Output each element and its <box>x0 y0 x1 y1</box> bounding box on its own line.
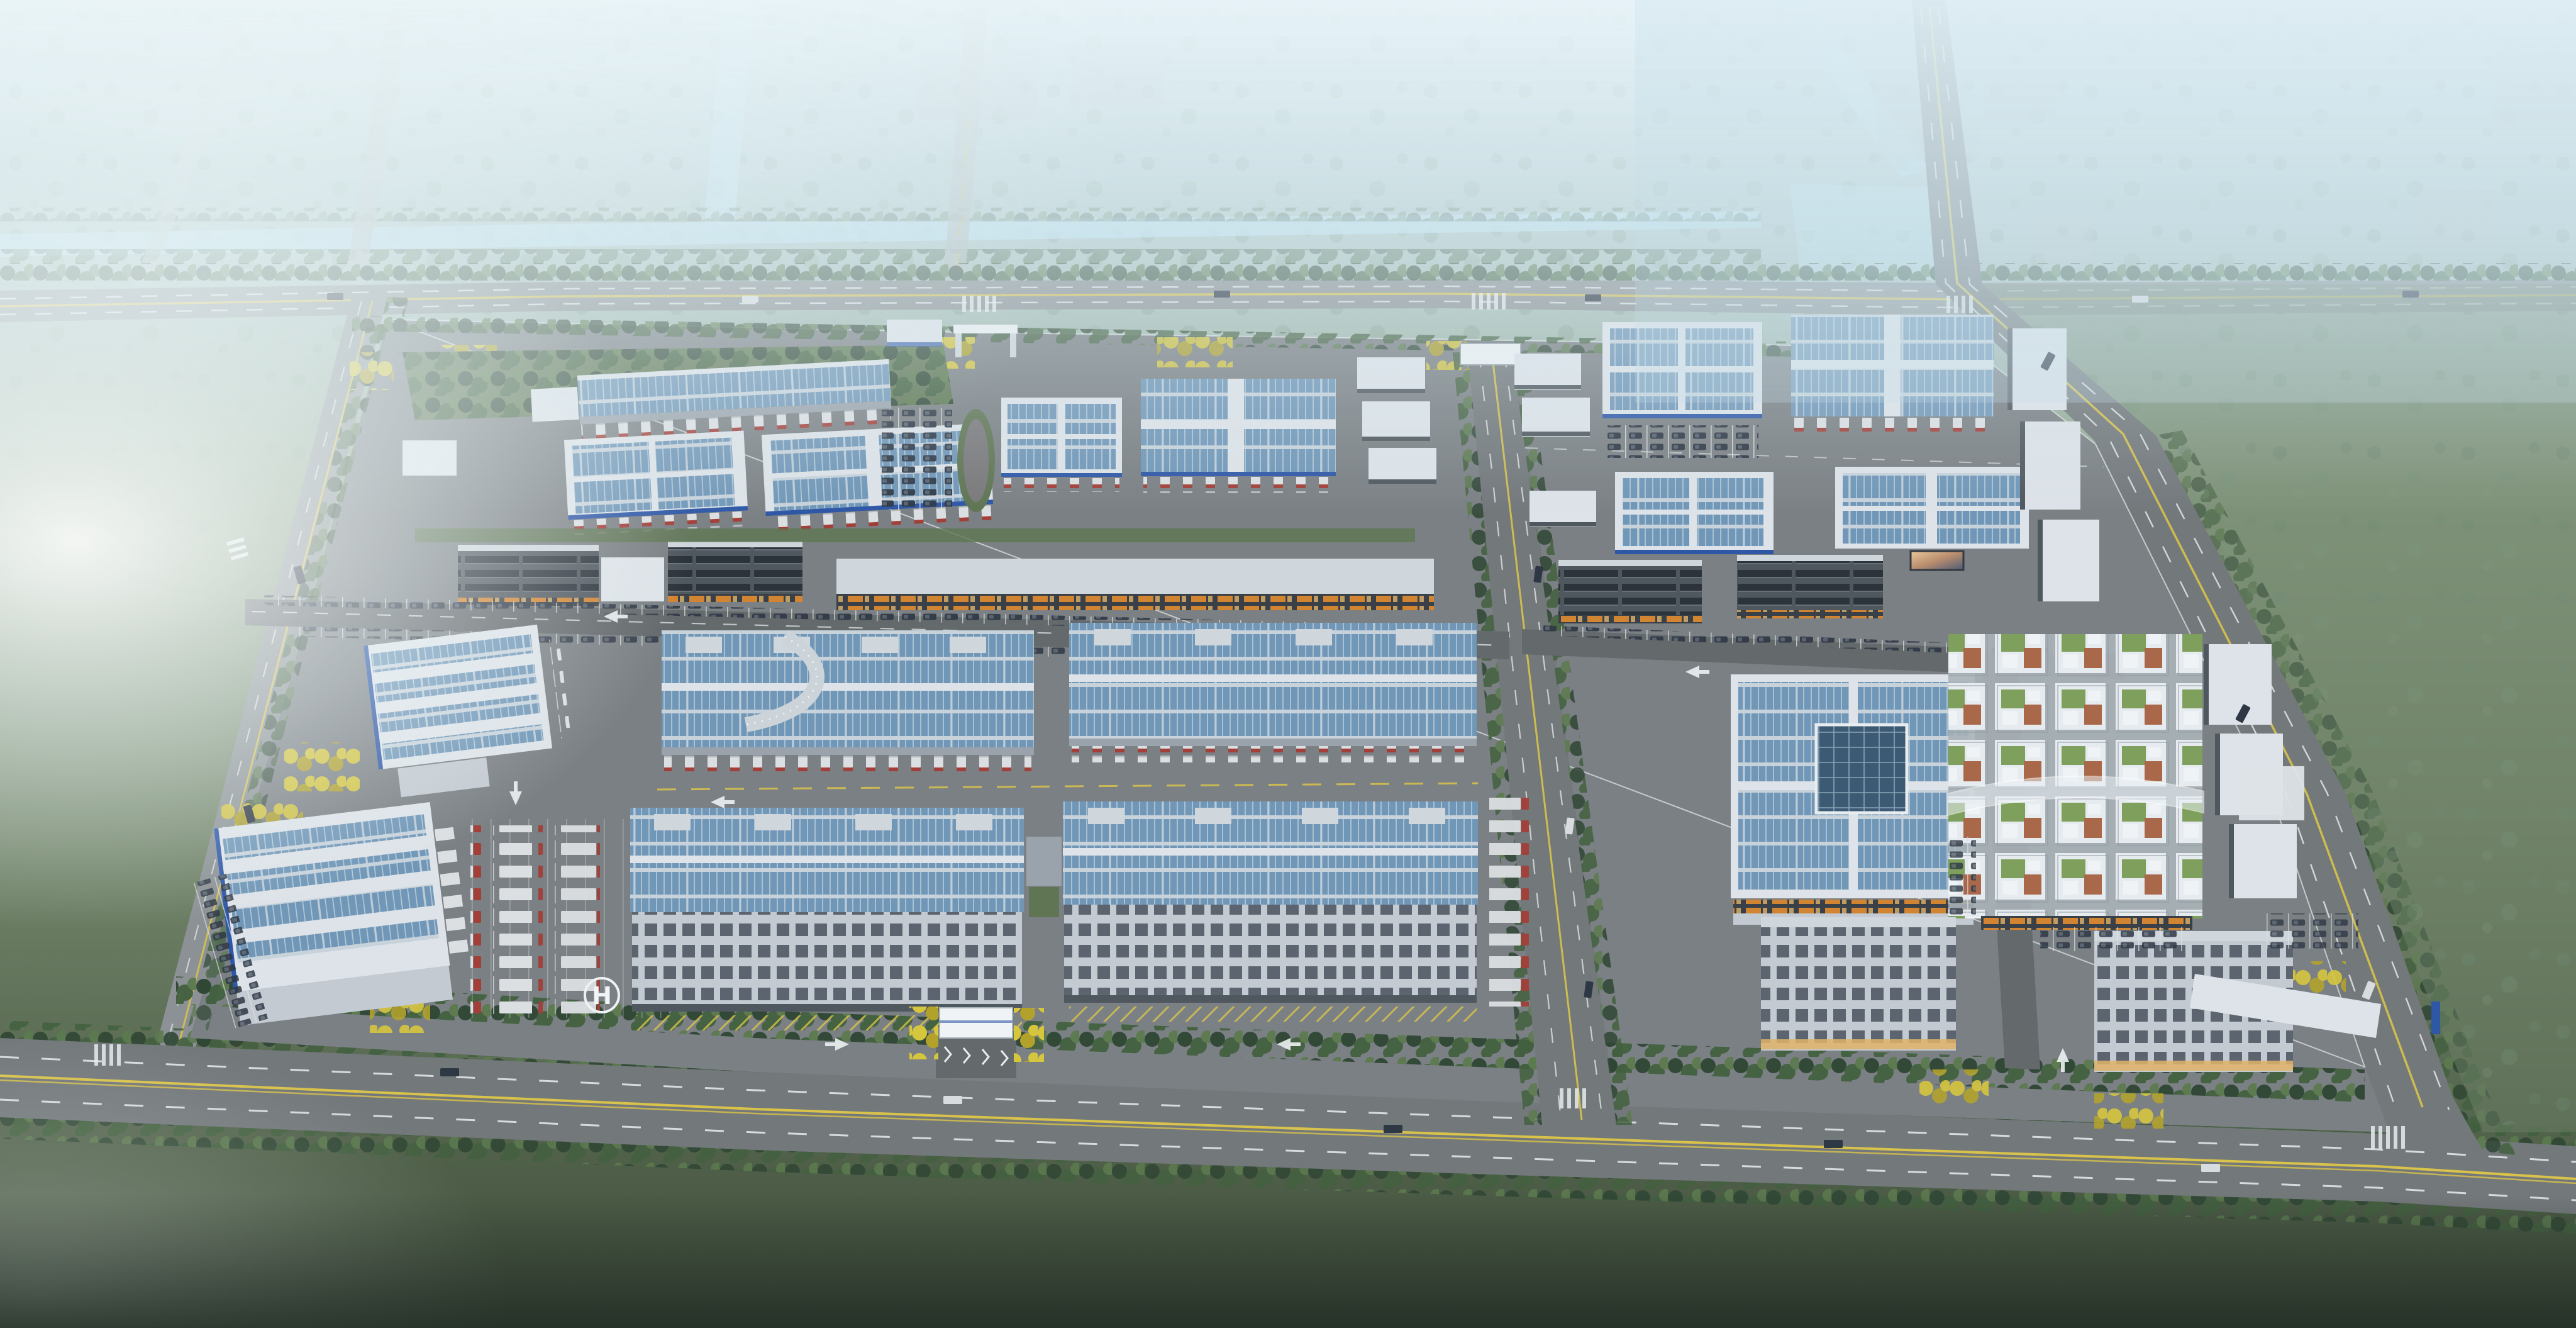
bw-se-base <box>1064 995 1477 1003</box>
roof-monitor <box>862 637 898 653</box>
roof-monitor <box>1409 808 1445 824</box>
bw-se-walk <box>1063 848 1478 856</box>
yellow-trees <box>1919 1069 1989 1105</box>
blue-totem-sign <box>2431 1002 2440 1034</box>
dropoff-canopy <box>2239 766 2304 820</box>
connector-courtyard <box>1029 887 1059 917</box>
car <box>2201 1164 2220 1172</box>
ru-office-2-shops <box>1737 610 1883 618</box>
truck-yard-col2 <box>538 825 600 1014</box>
strip-face <box>2038 520 2043 601</box>
roof-monitor <box>1296 629 1332 645</box>
bw-ne-canopy <box>1069 739 1477 746</box>
car <box>440 1068 459 1076</box>
warehouse-connector <box>1026 837 1062 886</box>
big-warehouse-sw <box>630 808 1024 1030</box>
office-tower-1-roof <box>1761 917 1956 927</box>
artery-truck-column <box>1489 795 1535 1007</box>
big-warehouse-ne <box>1069 623 1477 762</box>
office-tower-1-lobby <box>1761 1039 1956 1049</box>
bw-se-wall <box>1064 905 1477 998</box>
ru-office-1 <box>1558 565 1702 615</box>
strip-seg <box>2038 520 2099 601</box>
rl-parking-row-1 <box>2040 927 2185 951</box>
courtyard-cluster <box>1947 634 2204 930</box>
ru-office-2-roof <box>1737 555 1883 561</box>
office-slab-2-shops <box>668 594 802 602</box>
roof-monitor <box>950 637 986 653</box>
logistics-park-scene: H <box>0 0 2576 1328</box>
bottom-vignette <box>0 1195 2576 1328</box>
rl-big-warehouse <box>1731 674 1975 925</box>
bw-se-hatch-zone <box>1069 1007 1477 1022</box>
strip-face <box>2215 734 2220 815</box>
roof-monitor <box>1088 808 1124 824</box>
roof-monitor <box>1195 808 1231 824</box>
rl-parking-row-2 <box>2264 913 2358 949</box>
roof-monitor <box>956 814 992 830</box>
bw-ne-dock-trucks <box>1072 746 1474 762</box>
strip-face <box>1529 522 1596 527</box>
ru-office-1-roof <box>1558 560 1702 566</box>
strip-face <box>2229 824 2234 898</box>
roof-monitor <box>654 814 691 830</box>
strip-seg <box>2204 644 2272 725</box>
roof-monitor <box>1195 629 1231 645</box>
office-tower-2-lobby <box>2094 1061 2293 1071</box>
big-warehouse-se <box>1063 801 1478 1022</box>
rl-parking-col <box>1950 837 1976 917</box>
toll-canopy-accent <box>940 1020 1013 1023</box>
car <box>943 1096 962 1104</box>
ru-office-2 <box>1737 560 1883 610</box>
bw-nw-walk <box>662 683 1034 691</box>
ru-sw-panels <box>1623 515 1689 546</box>
retail-strip-roof <box>836 559 1434 594</box>
roof-monitor <box>686 637 722 653</box>
toll-yellow-trees-w <box>909 1007 938 1059</box>
bw-sw-wall <box>632 912 1022 1007</box>
strip-seg <box>2229 824 2297 898</box>
bw-ne-walk <box>1069 674 1477 682</box>
car <box>1824 1140 1843 1148</box>
bw-nw-canopy <box>662 747 1034 755</box>
ru-office-1-shops <box>1558 615 1702 623</box>
helipad-letter: H <box>592 982 612 1010</box>
roof-monitor <box>1094 629 1131 645</box>
cyan-tint-northeast <box>1635 0 2576 403</box>
roof-monitor <box>1302 808 1338 824</box>
aerial-rendering-stage: H <box>0 0 2576 1328</box>
led-screen-facade <box>1911 551 1963 570</box>
rl-wh-banner-strip <box>1733 900 1974 913</box>
yellow-trees <box>2094 1093 2163 1129</box>
big-warehouse-nw <box>662 630 1034 771</box>
truck-yard-col1 <box>470 825 532 1014</box>
ru-sw-parapet <box>1615 550 1774 554</box>
ru-sw-panels <box>1697 515 1763 546</box>
bw-sw-walk <box>630 856 1024 863</box>
strip-face <box>2204 644 2209 725</box>
retail-strip-shops <box>836 594 1434 610</box>
rl-wh-skylight <box>1816 725 1907 813</box>
roof-monitor <box>1396 629 1433 645</box>
roof-monitor <box>755 814 791 830</box>
car <box>1384 1125 1402 1133</box>
office-tower-1 <box>1761 925 1956 1051</box>
toll-yellow-trees-e <box>1014 1008 1044 1062</box>
roof-monitor <box>855 814 892 830</box>
bw-nw-dock-trucks <box>664 755 1031 771</box>
